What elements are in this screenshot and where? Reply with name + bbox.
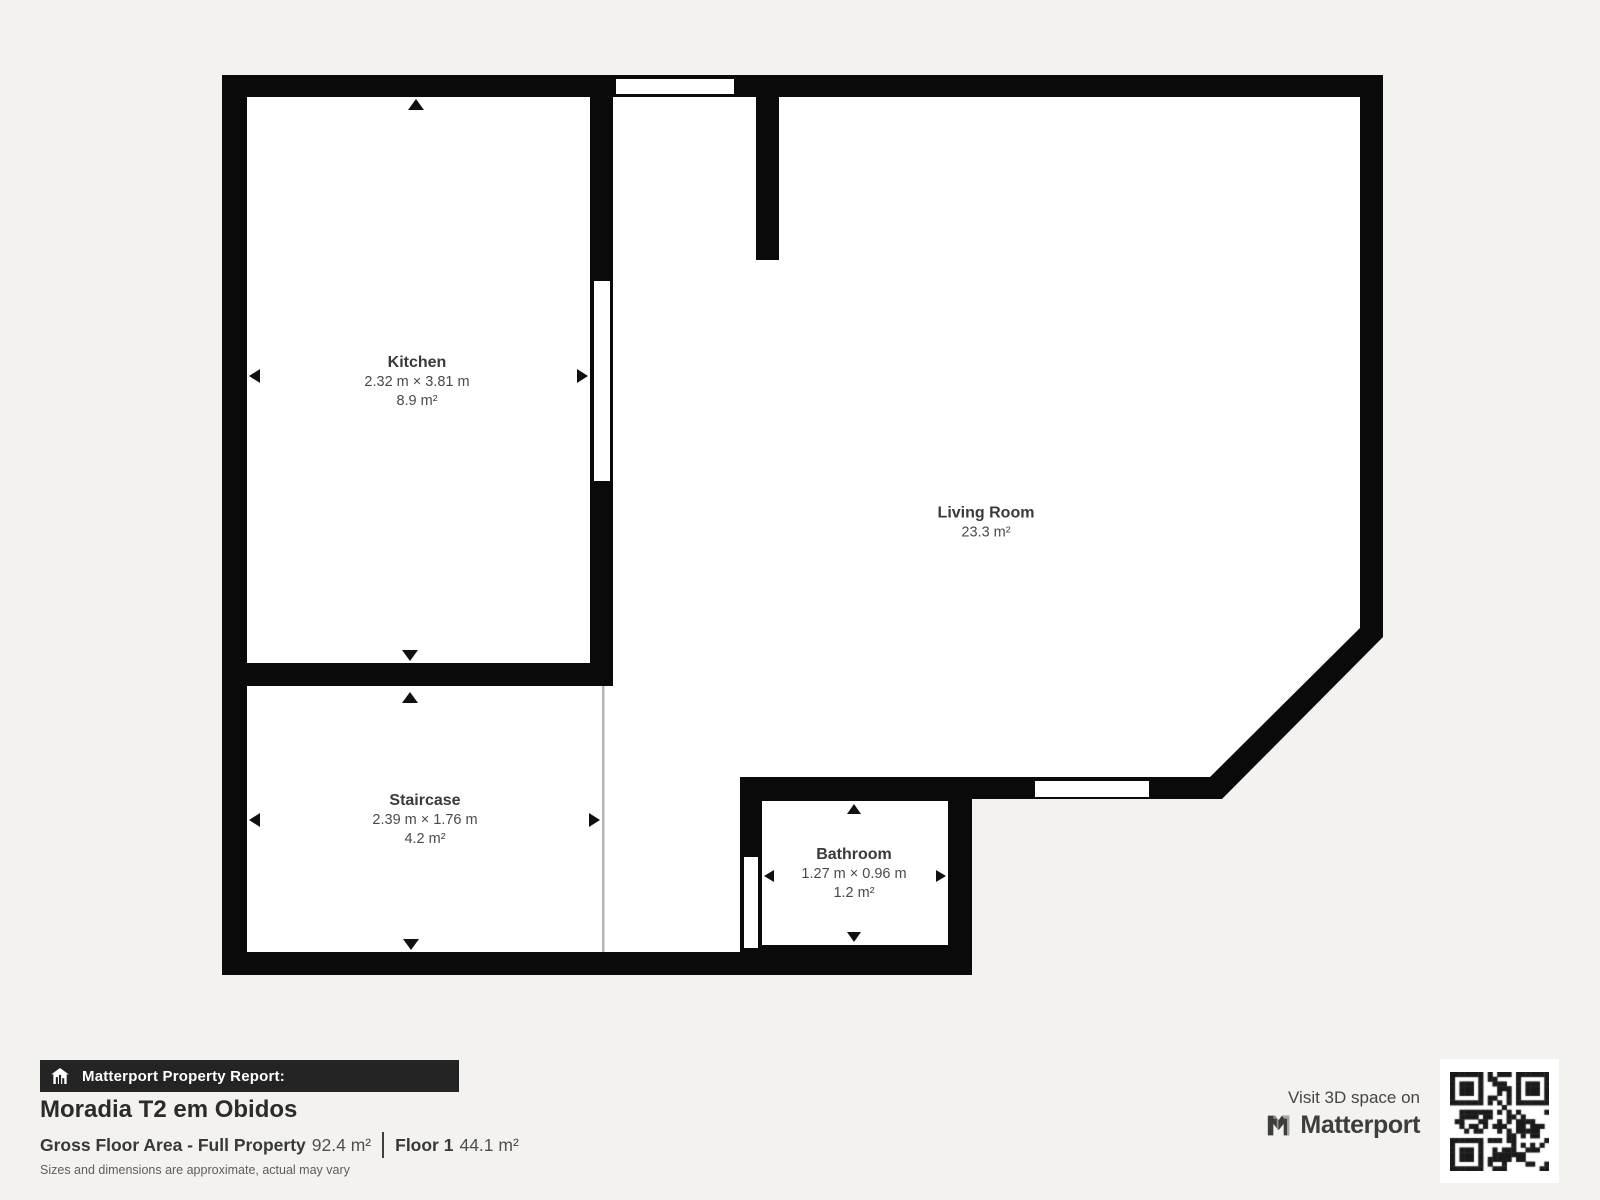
room-area: 1.2 m² bbox=[801, 884, 906, 903]
room-label-living-room: Living Room 23.3 m² bbox=[938, 504, 1035, 543]
matterport-logo-icon bbox=[1265, 1112, 1292, 1139]
living-room-window bbox=[1035, 781, 1149, 797]
room-label-kitchen: Kitchen 2.32 m × 3.81 m 8.9 m² bbox=[364, 353, 469, 411]
room-name: Kitchen bbox=[364, 353, 469, 373]
floor-plan bbox=[0, 0, 1600, 1200]
room-name: Bathroom bbox=[801, 845, 906, 865]
floor-value: 44.1 m² bbox=[459, 1135, 518, 1155]
floor-area: Floor 144.1 m² bbox=[395, 1135, 519, 1156]
report-header-bar: Matterport Property Report: bbox=[40, 1060, 459, 1092]
kitchen-side-window bbox=[594, 281, 610, 481]
floor-label: Floor 1 bbox=[395, 1135, 453, 1155]
kitchen-staircase-wall bbox=[222, 663, 613, 686]
disclaimer-text: Sizes and dimensions are approximate, ac… bbox=[40, 1163, 350, 1177]
matterport-brand: Matterport bbox=[1265, 1111, 1420, 1140]
room-label-bathroom: Bathroom 1.27 m × 0.96 m 1.2 m² bbox=[801, 845, 906, 903]
room-dimensions: 2.32 m × 3.81 m bbox=[364, 373, 469, 392]
info-divider bbox=[382, 1132, 384, 1158]
hall-stub-wall bbox=[756, 97, 779, 260]
room-name: Staircase bbox=[372, 791, 477, 811]
property-title: Moradia T2 em Obidos bbox=[40, 1096, 297, 1124]
gross-floor-area-label: Gross Floor Area - Full Property bbox=[40, 1135, 306, 1155]
bathroom-door-opening bbox=[744, 857, 758, 948]
gross-floor-area: Gross Floor Area - Full Property92.4 m² bbox=[40, 1135, 371, 1156]
report-bar-label: Matterport Property Report: bbox=[82, 1068, 285, 1085]
room-name: Living Room bbox=[938, 504, 1035, 524]
qr-code-pattern bbox=[1450, 1072, 1549, 1171]
staircase-open-edge bbox=[602, 686, 605, 952]
room-area: 8.9 m² bbox=[364, 392, 469, 411]
room-dimensions: 2.39 m × 1.76 m bbox=[372, 811, 477, 830]
gross-floor-area-value: 92.4 m² bbox=[312, 1135, 371, 1155]
home-icon bbox=[50, 1066, 70, 1086]
room-area: 23.3 m² bbox=[938, 524, 1035, 543]
room-label-staircase: Staircase 2.39 m × 1.76 m 4.2 m² bbox=[372, 791, 477, 849]
room-dimensions: 1.27 m × 0.96 m bbox=[801, 865, 906, 884]
top-window bbox=[616, 79, 734, 94]
visit-3d-text: Visit 3D space on bbox=[1265, 1088, 1420, 1108]
qr-code bbox=[1440, 1059, 1559, 1183]
promo-block: Visit 3D space on Matterport bbox=[1265, 1088, 1420, 1140]
matterport-wordmark: Matterport bbox=[1300, 1111, 1420, 1140]
floor-area-info: Gross Floor Area - Full Property92.4 m² … bbox=[40, 1131, 519, 1159]
room-area: 4.2 m² bbox=[372, 830, 477, 849]
